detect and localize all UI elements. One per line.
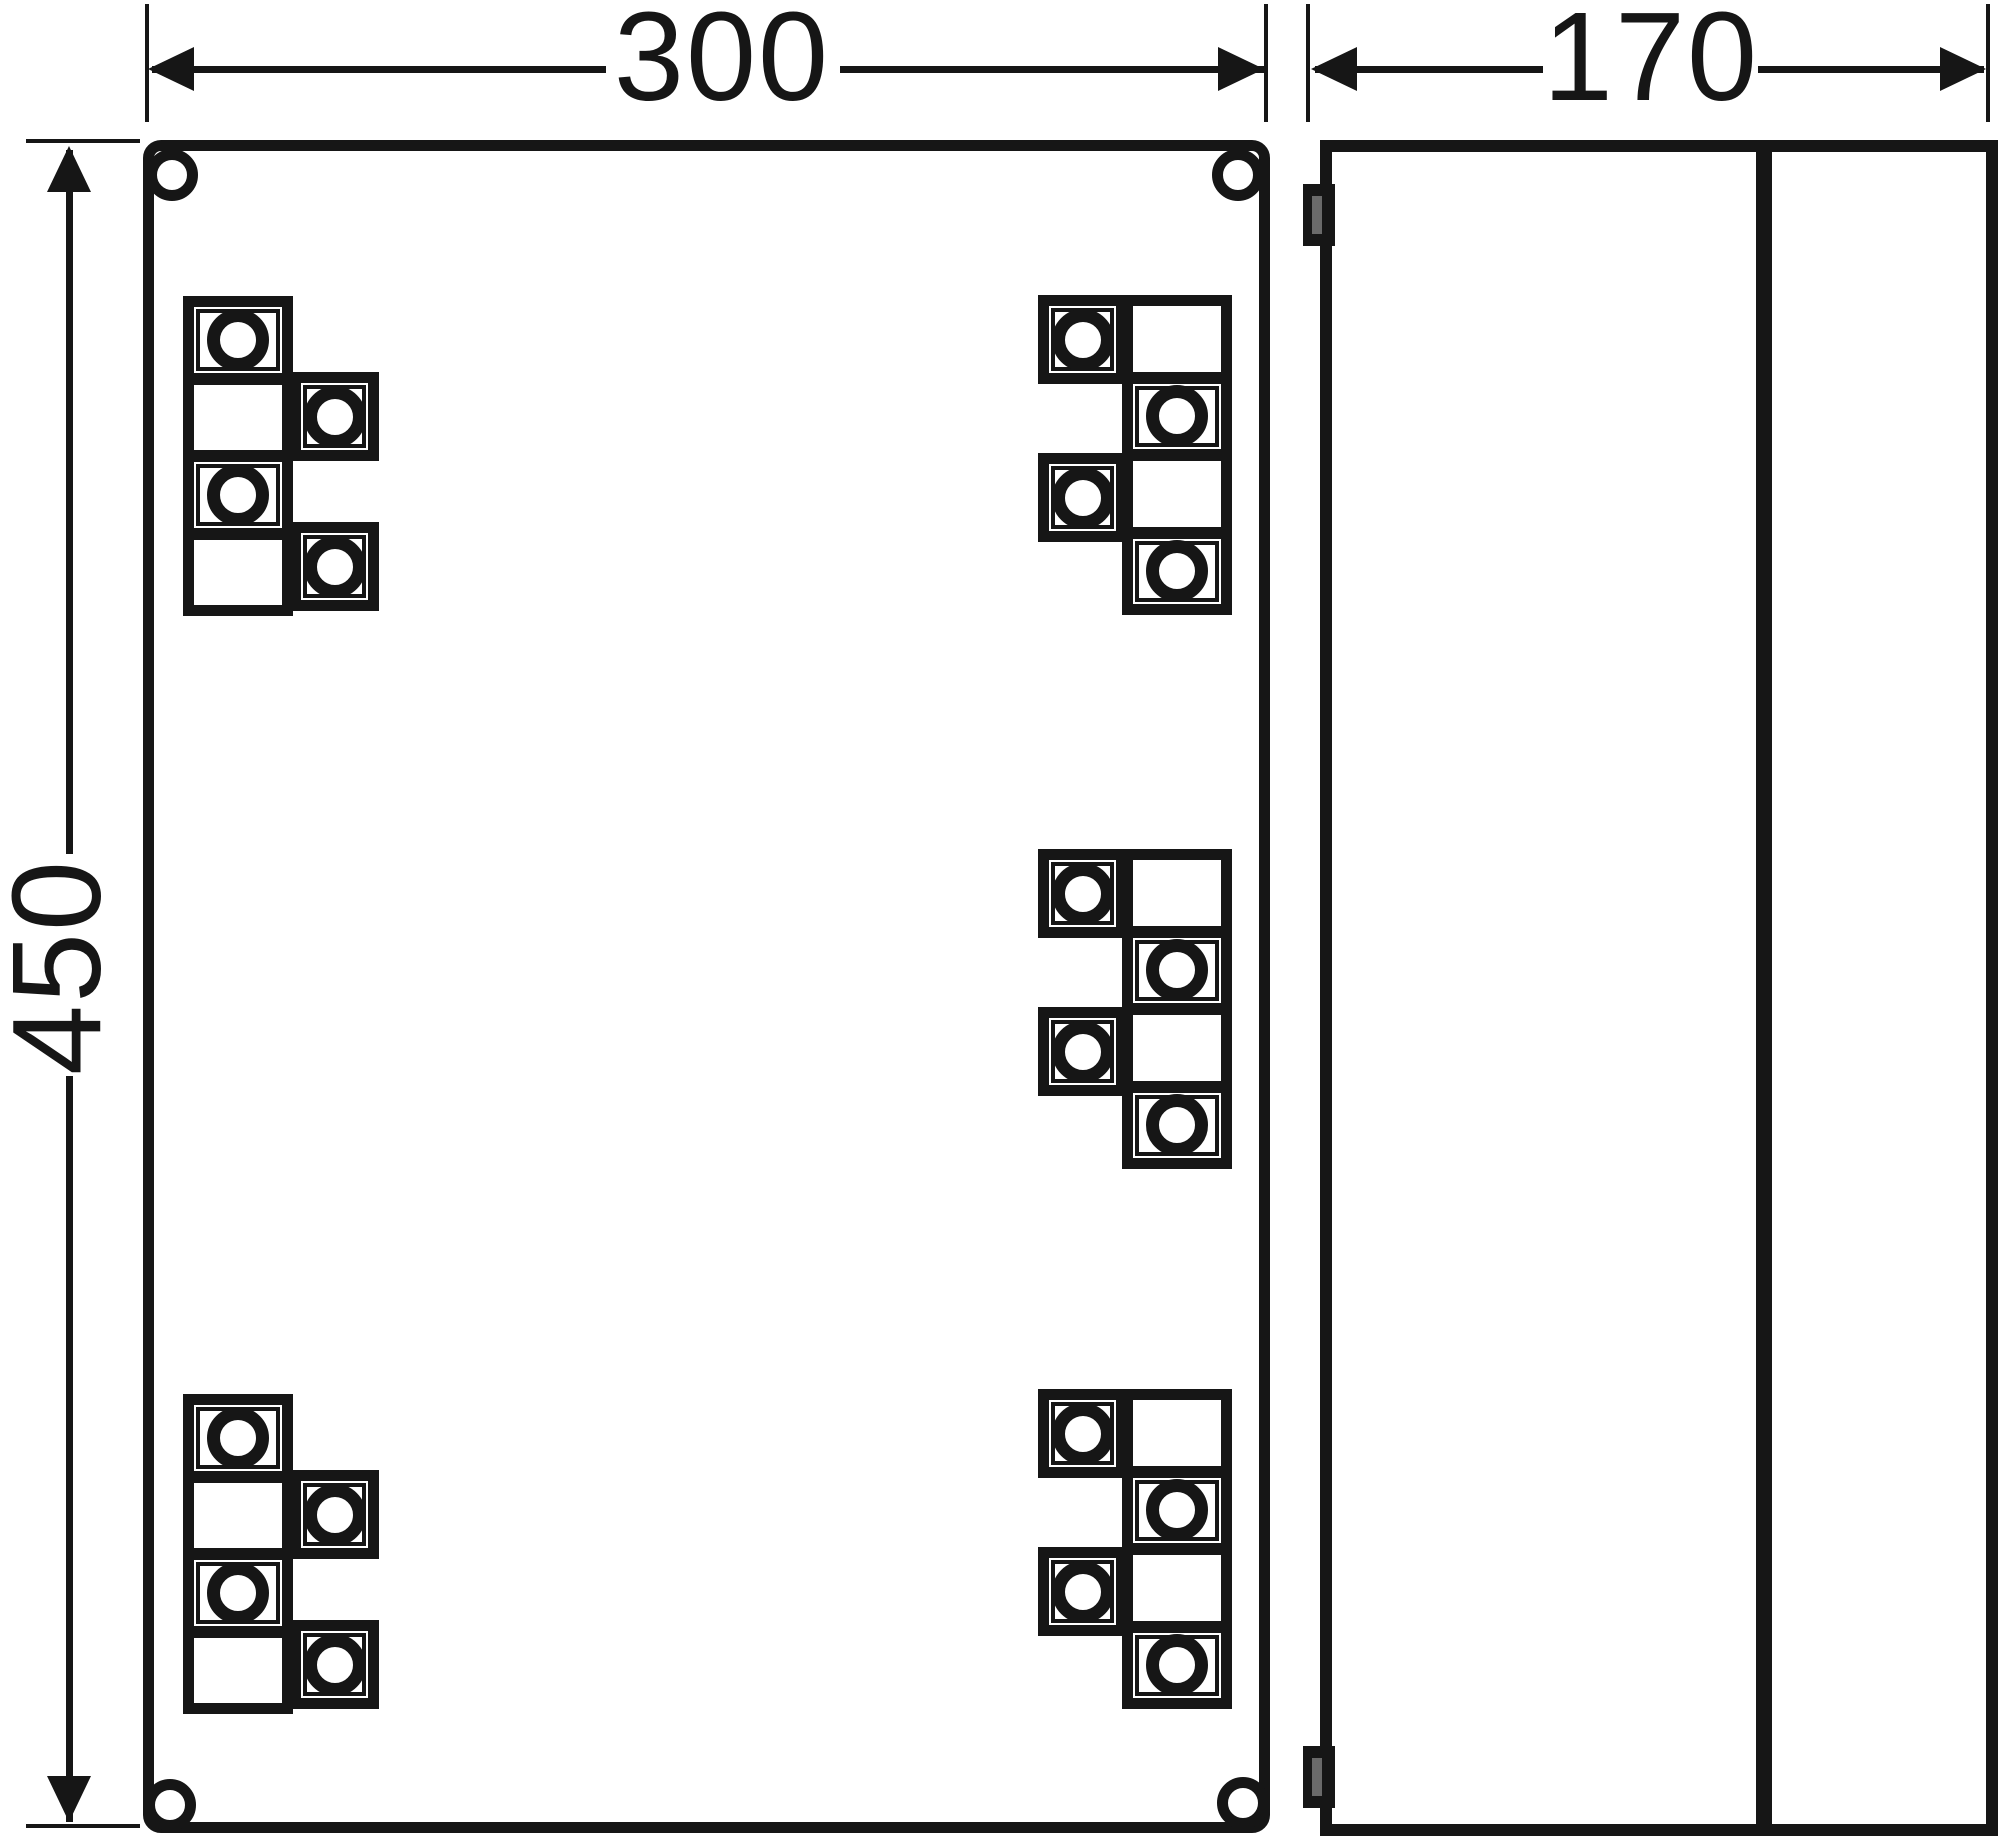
terminal-unit <box>1049 1558 1116 1625</box>
terminal-unit <box>1049 860 1116 927</box>
terminal-cell <box>1127 300 1227 378</box>
side-view-divider-line <box>1756 152 1772 1824</box>
terminal-unit <box>194 1560 282 1626</box>
terminal-screw-circle <box>1146 1479 1208 1541</box>
terminal-screw-circle <box>1052 309 1114 371</box>
height-arrow-down <box>47 1776 91 1822</box>
terminal-column <box>1122 1389 1232 1709</box>
depth-extension-line-right <box>1986 4 1990 122</box>
terminal-cell <box>188 379 288 457</box>
terminal-unit <box>301 383 368 450</box>
terminal-unit <box>1049 1018 1116 1085</box>
terminal-cell <box>188 1632 288 1710</box>
terminal-block <box>1038 453 1127 542</box>
terminal-cell <box>1127 932 1227 1010</box>
terminal-screw-circle <box>304 536 366 598</box>
terminal-block <box>290 522 379 611</box>
depth-value: 170 <box>1543 0 1759 120</box>
terminal-unit <box>1133 938 1221 1004</box>
terminal-unit <box>1049 464 1116 531</box>
height-dimension-line <box>66 1076 73 1822</box>
terminal-screw-circle <box>1146 1094 1208 1156</box>
width-dimension-line <box>840 66 1264 73</box>
terminal-column <box>183 1394 293 1714</box>
terminal-block <box>1038 1007 1127 1096</box>
terminal-column <box>183 296 293 616</box>
height-arrow-up <box>47 146 91 192</box>
terminal-screw-circle <box>1052 467 1114 529</box>
terminal-group-bottom-left <box>183 1394 379 1714</box>
terminal-screw-circle <box>1146 540 1208 602</box>
depth-extension-line-left <box>1306 4 1310 122</box>
terminal-column <box>1122 849 1232 1169</box>
terminal-cell <box>1127 1009 1227 1087</box>
terminal-block <box>290 1620 379 1709</box>
terminal-block <box>1038 295 1127 384</box>
terminal-unit <box>1133 1478 1221 1544</box>
terminal-screw-circle <box>304 1484 366 1546</box>
terminal-group-top-left <box>183 296 379 616</box>
dimensional-drawing: 300 170 450 <box>0 0 2000 1836</box>
terminal-screw-circle <box>207 309 269 371</box>
terminal-unit <box>194 462 282 528</box>
terminal-block <box>1038 1389 1127 1478</box>
hinge-slot <box>1312 1758 1322 1796</box>
terminal-cell <box>188 1554 288 1632</box>
terminal-cell <box>1127 1549 1227 1627</box>
terminal-screw-circle <box>1146 1634 1208 1696</box>
terminal-screw-circle <box>207 1562 269 1624</box>
corner-screw-bottom-right <box>1217 1777 1269 1829</box>
width-arrow-left <box>148 47 194 91</box>
corner-screw-top-left <box>146 149 198 201</box>
terminal-cell <box>1127 854 1227 932</box>
height-value: 450 <box>0 859 120 1075</box>
height-extension-line-bottom <box>26 1824 140 1828</box>
terminal-unit <box>1133 539 1221 605</box>
terminal-screw-circle <box>1052 1561 1114 1623</box>
height-dimension-line <box>66 150 73 854</box>
terminal-screw-circle <box>1146 939 1208 1001</box>
terminal-unit <box>1049 1400 1116 1467</box>
terminal-cell <box>188 456 288 534</box>
terminal-block <box>1038 849 1127 938</box>
terminal-screw-circle <box>207 464 269 526</box>
terminal-unit <box>301 533 368 600</box>
terminal-screw-circle <box>1052 1021 1114 1083</box>
terminal-screw-circle <box>207 1407 269 1469</box>
terminal-cell <box>1127 1472 1227 1550</box>
terminal-cell <box>1127 1087 1227 1165</box>
terminal-group-middle-right <box>1038 849 1234 1169</box>
terminal-cell <box>1127 455 1227 533</box>
terminal-block <box>1038 1547 1127 1636</box>
side-view-outline <box>1320 140 1998 1836</box>
terminal-column <box>1122 295 1232 615</box>
width-extension-line-right <box>1264 4 1268 122</box>
terminal-unit <box>1049 306 1116 373</box>
terminal-block <box>290 372 379 461</box>
terminal-screw-circle <box>1146 385 1208 447</box>
terminal-screw-circle <box>1052 1403 1114 1465</box>
height-extension-line-top <box>26 139 140 143</box>
hinge-slot <box>1312 196 1322 234</box>
terminal-cell <box>1127 378 1227 456</box>
terminal-unit <box>301 1631 368 1698</box>
terminal-screw-circle <box>304 1634 366 1696</box>
hinge-tab-top <box>1303 184 1335 246</box>
depth-arrow-left <box>1311 47 1357 91</box>
terminal-unit <box>194 307 282 373</box>
terminal-unit <box>1133 384 1221 450</box>
terminal-cell <box>188 301 288 379</box>
terminal-group-bottom-right <box>1038 1389 1234 1709</box>
terminal-unit <box>301 1481 368 1548</box>
terminal-screw-circle <box>1052 863 1114 925</box>
terminal-unit <box>194 1405 282 1471</box>
terminal-cell <box>188 1477 288 1555</box>
terminal-unit <box>1133 1633 1221 1699</box>
terminal-cell <box>188 1399 288 1477</box>
width-arrow-right <box>1218 47 1264 91</box>
terminal-cell <box>188 534 288 612</box>
terminal-cell <box>1127 1394 1227 1472</box>
corner-screw-top-right <box>1212 149 1264 201</box>
width-dimension-line <box>152 66 606 73</box>
width-value: 300 <box>614 0 830 120</box>
hinge-tab-bottom <box>1303 1746 1335 1808</box>
terminal-screw-circle <box>304 386 366 448</box>
corner-screw-bottom-left <box>144 1779 196 1831</box>
terminal-cell <box>1127 1627 1227 1705</box>
terminal-block <box>290 1470 379 1559</box>
terminal-unit <box>1133 1093 1221 1159</box>
terminal-group-top-right <box>1038 295 1234 615</box>
depth-arrow-right <box>1940 47 1986 91</box>
terminal-cell <box>1127 533 1227 611</box>
